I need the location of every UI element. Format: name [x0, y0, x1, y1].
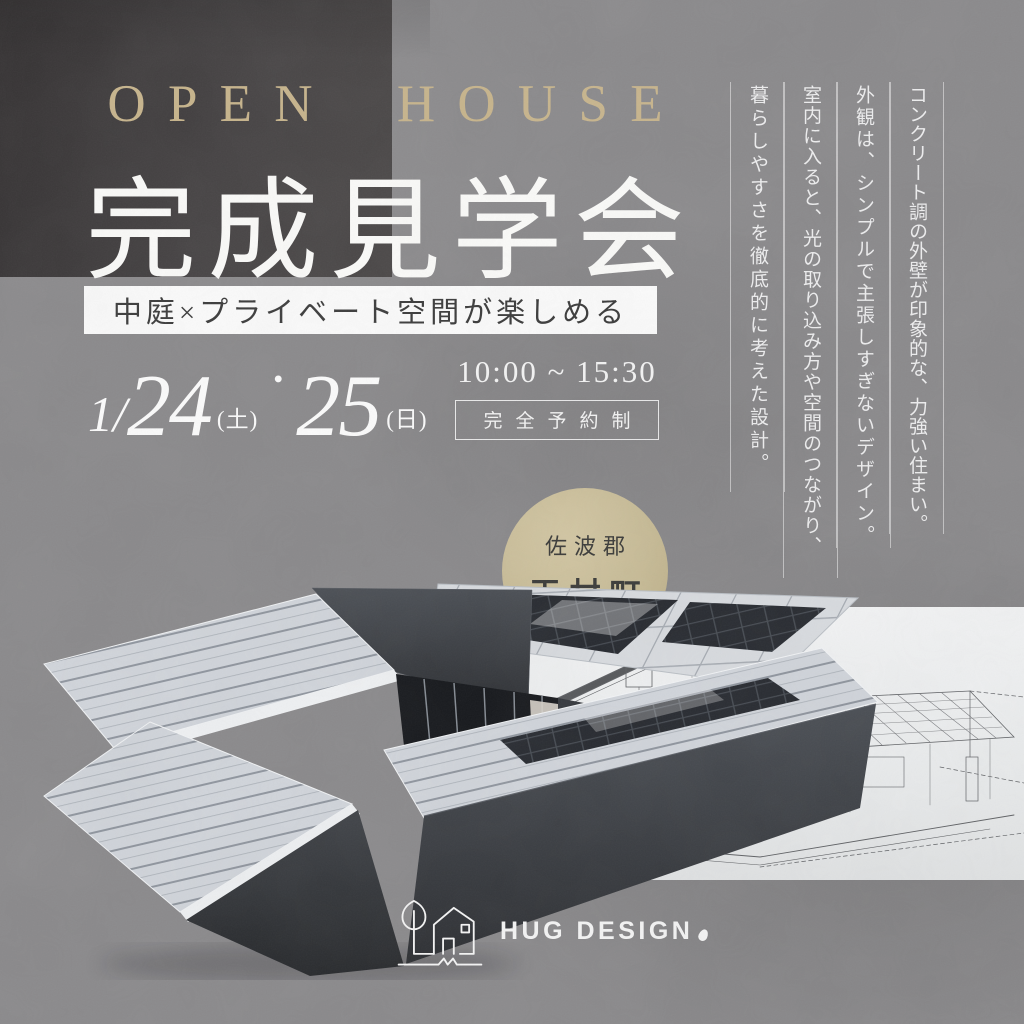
eyebrow-open-house: OPEN HOUSE — [0, 74, 770, 134]
vertical-copy-3: 室内に入ると、光の取り込み方や空間のつながり、 — [783, 82, 838, 578]
event-time: 10:00 ~ 15:30 — [455, 354, 659, 390]
vertical-copy-2: 外観は、シンプルで主張しすぎないデザイン。 — [836, 82, 891, 548]
vertical-copy-4: 暮らしやすさを徹底的に考えた設計。 — [730, 82, 785, 492]
ground-shadow — [0, 0, 430, 60]
date-day1-weekday: (土) — [211, 400, 260, 442]
date-day2-weekday: (日) — [380, 400, 429, 442]
tagline-text: 中庭×プライベート空間が楽しめる — [113, 289, 628, 331]
reservation-note: 完全予約制 — [455, 400, 659, 440]
page-title: 完成見学会 — [0, 140, 770, 301]
house-tree-icon — [394, 898, 486, 976]
open-house-flyer: 佐波郡 玉村町 — [0, 0, 1024, 1024]
location-district: 佐波郡 — [538, 529, 632, 561]
tagline-bar: 中庭×プライベート空間が楽しめる — [84, 286, 657, 334]
date-month: 1/ — [88, 394, 127, 442]
date-separator: ・ — [260, 355, 296, 401]
brand-logo: HUG DESIGN — [394, 898, 707, 976]
brand-name: HUG DESIGN — [500, 917, 693, 946]
date-day2: 25 — [296, 373, 380, 442]
time-block: 10:00 ~ 15:30 完全予約制 — [455, 354, 659, 440]
vertical-copy-1: コンクリート調の外壁が印象的な、力強い住まい。 — [889, 82, 944, 534]
date-day1: 24 — [127, 373, 211, 442]
event-dates: 1/ 24 (土) ・ 25 (日) — [88, 342, 430, 442]
